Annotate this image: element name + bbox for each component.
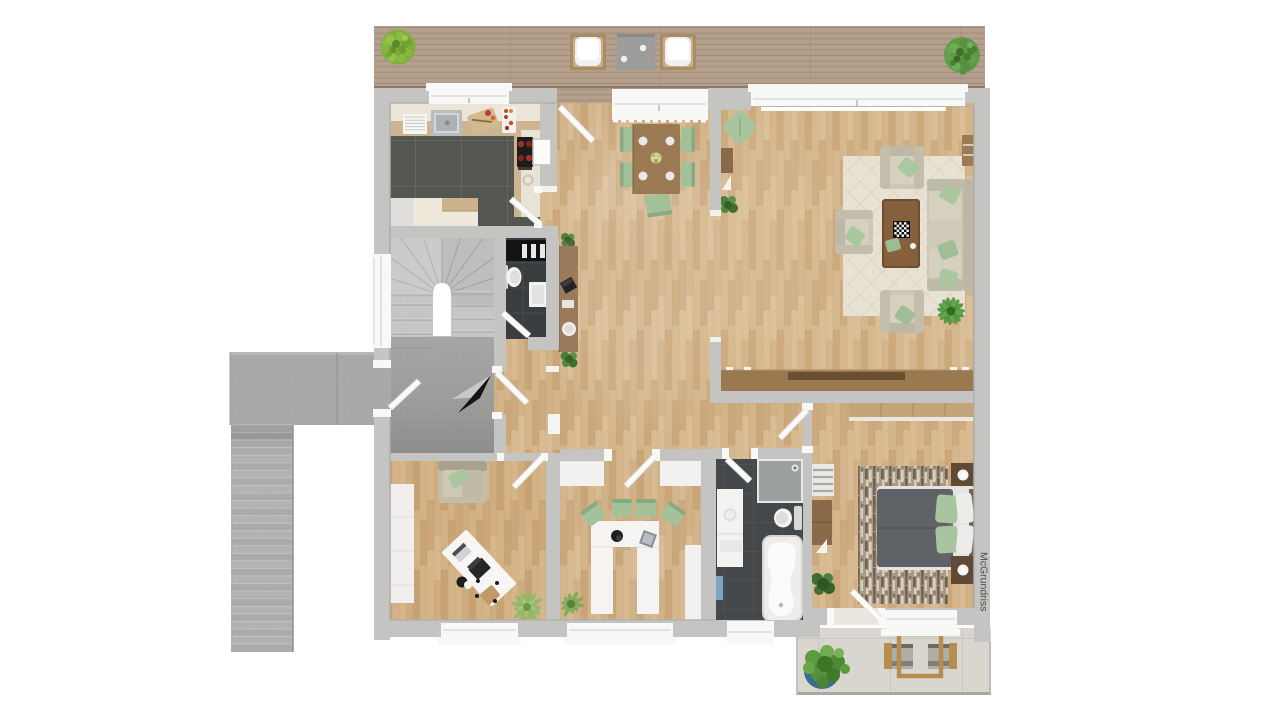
svg-text:McGrundriss: McGrundriss [978, 552, 990, 612]
